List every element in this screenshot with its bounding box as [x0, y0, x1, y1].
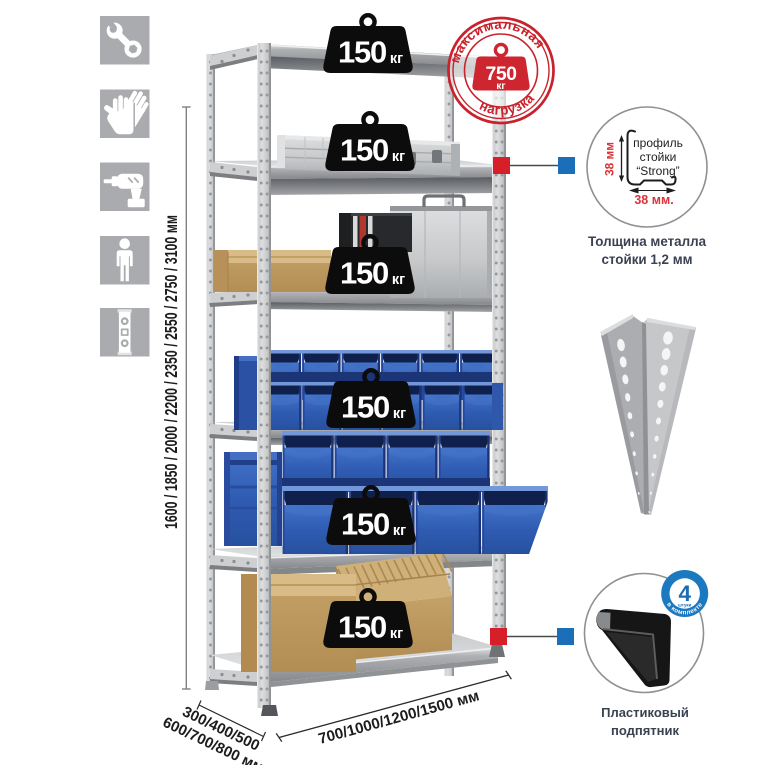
svg-text:38 мм.: 38 мм. — [634, 193, 673, 207]
svg-text:“Strong”: “Strong” — [636, 164, 679, 178]
svg-text:штуки: штуки — [678, 603, 692, 608]
svg-text:Толщина металла: Толщина металла — [588, 234, 707, 249]
svg-text:700/1000/1200/1500 мм: 700/1000/1200/1500 мм — [317, 687, 482, 747]
svg-text:профиль: профиль — [633, 136, 683, 150]
svg-text:кг: кг — [496, 81, 505, 92]
svg-text:38 мм: 38 мм — [603, 142, 617, 176]
svg-text:стойки 1,2 мм: стойки 1,2 мм — [601, 252, 692, 267]
svg-text:подпятник: подпятник — [611, 723, 680, 738]
svg-text:стойки: стойки — [640, 150, 677, 164]
svg-text:Пластиковый: Пластиковый — [601, 705, 689, 720]
svg-text:1600 / 1850 / 2000 / 2200 / 23: 1600 / 1850 / 2000 / 2200 / 2350 / 2550 … — [161, 215, 181, 529]
